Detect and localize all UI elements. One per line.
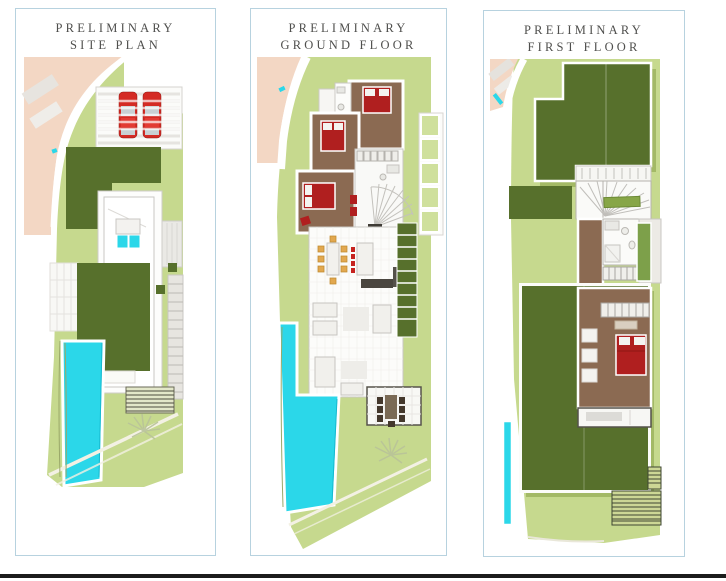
red-cabinet (350, 207, 357, 216)
bottom-divider-bar (0, 574, 726, 578)
skylight (129, 235, 140, 248)
hedge-planters (419, 113, 443, 235)
skylight (117, 235, 128, 248)
title-line-2: SITE PLAN (18, 37, 213, 54)
bedroom-terrace (578, 408, 651, 427)
paving-top (124, 57, 184, 88)
panel-first-floor: PRELIMINARY FIRST FLOOR (483, 10, 685, 557)
hedge-strip (397, 223, 417, 337)
living-wing (309, 227, 403, 397)
bed (363, 87, 391, 113)
balcony-planter (637, 219, 661, 283)
title-line-1: PRELIMINARY (18, 20, 213, 37)
bed (616, 335, 646, 375)
garage (96, 87, 182, 149)
master-bedroom (578, 288, 651, 408)
stairs-fan (576, 181, 651, 219)
rug-squares (582, 329, 597, 382)
terrace-grid (50, 263, 78, 331)
outdoor-table (385, 395, 397, 419)
landing-strip (576, 166, 651, 181)
wardrobe-row (357, 151, 398, 161)
panel-site-plan: PRELIMINARY SITE PLAN (15, 8, 216, 556)
wardrobe-row (601, 303, 649, 317)
kitchen-island (357, 243, 373, 275)
garden-steps-hatch (612, 491, 661, 525)
bathroom (603, 219, 639, 265)
title-line-2: FIRST FLOOR (486, 39, 682, 56)
red-cabinet (350, 195, 357, 204)
bed (321, 121, 345, 151)
title-line-1: PRELIMINARY (486, 22, 682, 39)
plans-page: PRELIMINARY SITE PLAN (0, 0, 726, 581)
outdoor-terrace (367, 387, 421, 427)
small-steps-hatch (648, 467, 661, 489)
dining-table (327, 243, 339, 275)
title-line-2: GROUND FLOOR (253, 37, 444, 54)
first-floor-drawing (484, 59, 684, 559)
panel-title: PRELIMINARY GROUND FLOOR (253, 20, 444, 54)
stair-planter (604, 196, 640, 207)
garden-steps-hatch (126, 387, 174, 413)
bed (303, 183, 335, 209)
kitchen-counter (361, 279, 393, 288)
wardrobe-row (603, 267, 639, 280)
panel-title: PRELIMINARY FIRST FLOOR (486, 22, 682, 56)
ground-floor-drawing (251, 57, 446, 557)
panel-ground-floor: PRELIMINARY GROUND FLOOR (250, 8, 447, 556)
site-plan-drawing (16, 57, 215, 557)
panel-title: PRELIMINARY SITE PLAN (18, 20, 213, 54)
hedge-left (509, 186, 572, 219)
side-deck (162, 221, 182, 267)
bench (615, 321, 637, 329)
title-line-1: PRELIMINARY (253, 20, 444, 37)
pool-sliver (503, 421, 512, 525)
